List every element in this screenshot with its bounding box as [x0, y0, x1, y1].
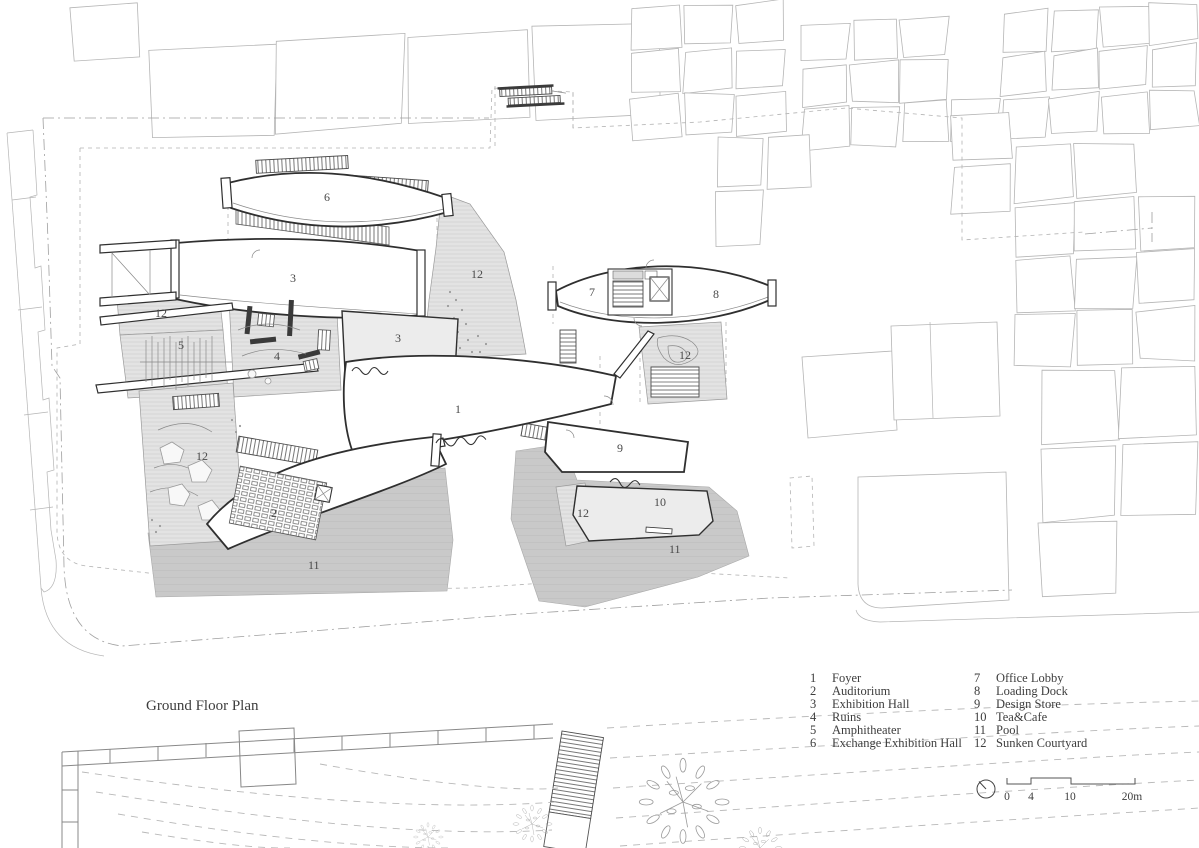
context-building: [951, 113, 1013, 161]
context-building: [149, 44, 277, 137]
context-building: [1038, 521, 1117, 597]
stair-garden-top: [173, 393, 220, 409]
room-label-3a: 3: [290, 271, 296, 285]
context-building: [803, 65, 847, 108]
context-building: [684, 5, 733, 44]
room-label-4: 4: [274, 349, 280, 363]
room-label-12-small: 12: [577, 506, 589, 520]
context-building: [70, 3, 140, 61]
context-building: [1014, 144, 1073, 204]
room-label-12-garden: 12: [196, 449, 208, 463]
legend-num: 7: [974, 671, 980, 685]
context-building: [1074, 144, 1137, 199]
context-building: [767, 135, 811, 190]
context-building: [683, 48, 732, 94]
legend-label: Sunken Courtyard: [996, 736, 1088, 750]
legend-label: Auditorium: [832, 684, 891, 698]
context-building: [1077, 309, 1133, 365]
legend-label: Tea&Cafe: [996, 710, 1048, 724]
scale-tick-0: 0: [1004, 791, 1010, 803]
context-building: [951, 164, 1011, 215]
room-label-8: 8: [713, 287, 719, 301]
context-building: [630, 93, 683, 141]
legend-label: Design Store: [996, 697, 1061, 711]
legend-label: Pool: [996, 723, 1019, 737]
legend-num: 12: [974, 736, 987, 750]
context-building: [1138, 196, 1194, 251]
context-building: [1048, 91, 1099, 133]
context-building: [1136, 249, 1194, 304]
context-building: [408, 30, 530, 124]
context-building: [1016, 256, 1076, 313]
context-building: [631, 5, 682, 50]
room-label-12-upperleft: 12: [155, 306, 167, 320]
auditorium-elevator: [315, 485, 333, 503]
context-building: [1015, 203, 1075, 258]
room-label-10: 10: [654, 495, 666, 509]
context-building: [1136, 306, 1195, 362]
west-stub-block: [100, 240, 176, 306]
room-label-12-east: 12: [471, 267, 483, 281]
plan-drawing: 6 3 12 12 5 4 3 7 8 12 1 9 2 10 12 11 12…: [0, 0, 1199, 848]
context-building: [900, 60, 949, 104]
context-building: [736, 0, 784, 43]
scale-tick-4: 4: [1028, 791, 1034, 803]
legend-label: Office Lobby: [996, 671, 1064, 685]
legend-label: Amphitheater: [832, 723, 902, 737]
context-building: [1152, 43, 1196, 88]
tea-cafe-10: [573, 486, 713, 541]
context-building: [854, 19, 898, 60]
room-label-12-south: 12: [679, 348, 691, 362]
context-building: [1051, 10, 1098, 52]
context-building: [1003, 8, 1048, 52]
legend: 1 Foyer 2 Auditorium 3 Exhibition Hall 4…: [810, 671, 1088, 750]
context-building: [736, 91, 787, 136]
context-building: [1074, 197, 1136, 251]
context-building: [1014, 314, 1075, 367]
stair-wing6-top: [256, 155, 349, 173]
room-label-2: 2: [271, 506, 277, 520]
legend-label: Exhibition Hall: [832, 697, 910, 711]
legend-num: 3: [810, 697, 816, 711]
context-building: [1149, 3, 1198, 46]
context-building: [899, 16, 949, 57]
context-building: [685, 93, 735, 135]
room-label-7: 7: [589, 285, 595, 299]
legend-label: Foyer: [832, 671, 862, 685]
stair-design-store: [521, 423, 548, 440]
context-building: [717, 137, 763, 187]
legend-num: 2: [810, 684, 816, 698]
context-building: [849, 60, 898, 103]
context-building: [1099, 46, 1147, 90]
context-building: [1100, 6, 1150, 47]
core-wing-7-8: [608, 269, 672, 315]
context-building: [1041, 446, 1116, 523]
legend-num: 5: [810, 723, 816, 737]
room-label-5: 5: [178, 338, 184, 352]
north-arrow-icon: [977, 780, 995, 798]
legend-num: 6: [810, 736, 816, 750]
scale-tick-10: 10: [1064, 791, 1076, 803]
context-building: [903, 100, 949, 142]
context-building: [1000, 51, 1046, 96]
legend-num: 1: [810, 671, 816, 685]
context-building: [1101, 92, 1149, 134]
site-plan-sheet: 6 3 12 12 5 4 3 7 8 12 1 9 2 10 12 11 12…: [0, 0, 1199, 848]
context-building: [1075, 257, 1137, 309]
legend-num: 10: [974, 710, 987, 724]
legend-label: Ruins: [832, 710, 861, 724]
context-building: [1042, 370, 1120, 445]
context-building: [736, 50, 785, 89]
context-building: [715, 190, 763, 247]
legend-num: 9: [974, 697, 980, 711]
legend-label: Loading Dock: [996, 684, 1069, 698]
context-building: [1150, 90, 1199, 130]
context-building: [275, 33, 405, 134]
context-building: [1121, 442, 1198, 516]
room-label-11-east: 11: [669, 542, 681, 556]
page-title: Ground Floor Plan: [146, 698, 259, 714]
context-building: [1118, 366, 1196, 438]
scale-tick-20m: 20m: [1122, 791, 1143, 803]
legend-num: 4: [810, 710, 817, 724]
room-label-6: 6: [324, 190, 330, 204]
context-building: [631, 48, 680, 92]
stair-foyer-east: [560, 330, 576, 363]
room-label-3b: 3: [395, 331, 401, 345]
context-building: [851, 107, 900, 147]
room-label-9: 9: [617, 441, 623, 455]
room-label-1: 1: [455, 402, 461, 416]
room-label-11-west: 11: [308, 558, 320, 572]
context-building: [1052, 48, 1099, 90]
legend-label: Exchange Exhibition Hall: [832, 736, 962, 750]
park-stair: [544, 731, 604, 848]
context-building: [801, 23, 850, 60]
legend-num: 11: [974, 723, 986, 737]
legend-num: 8: [974, 684, 980, 698]
